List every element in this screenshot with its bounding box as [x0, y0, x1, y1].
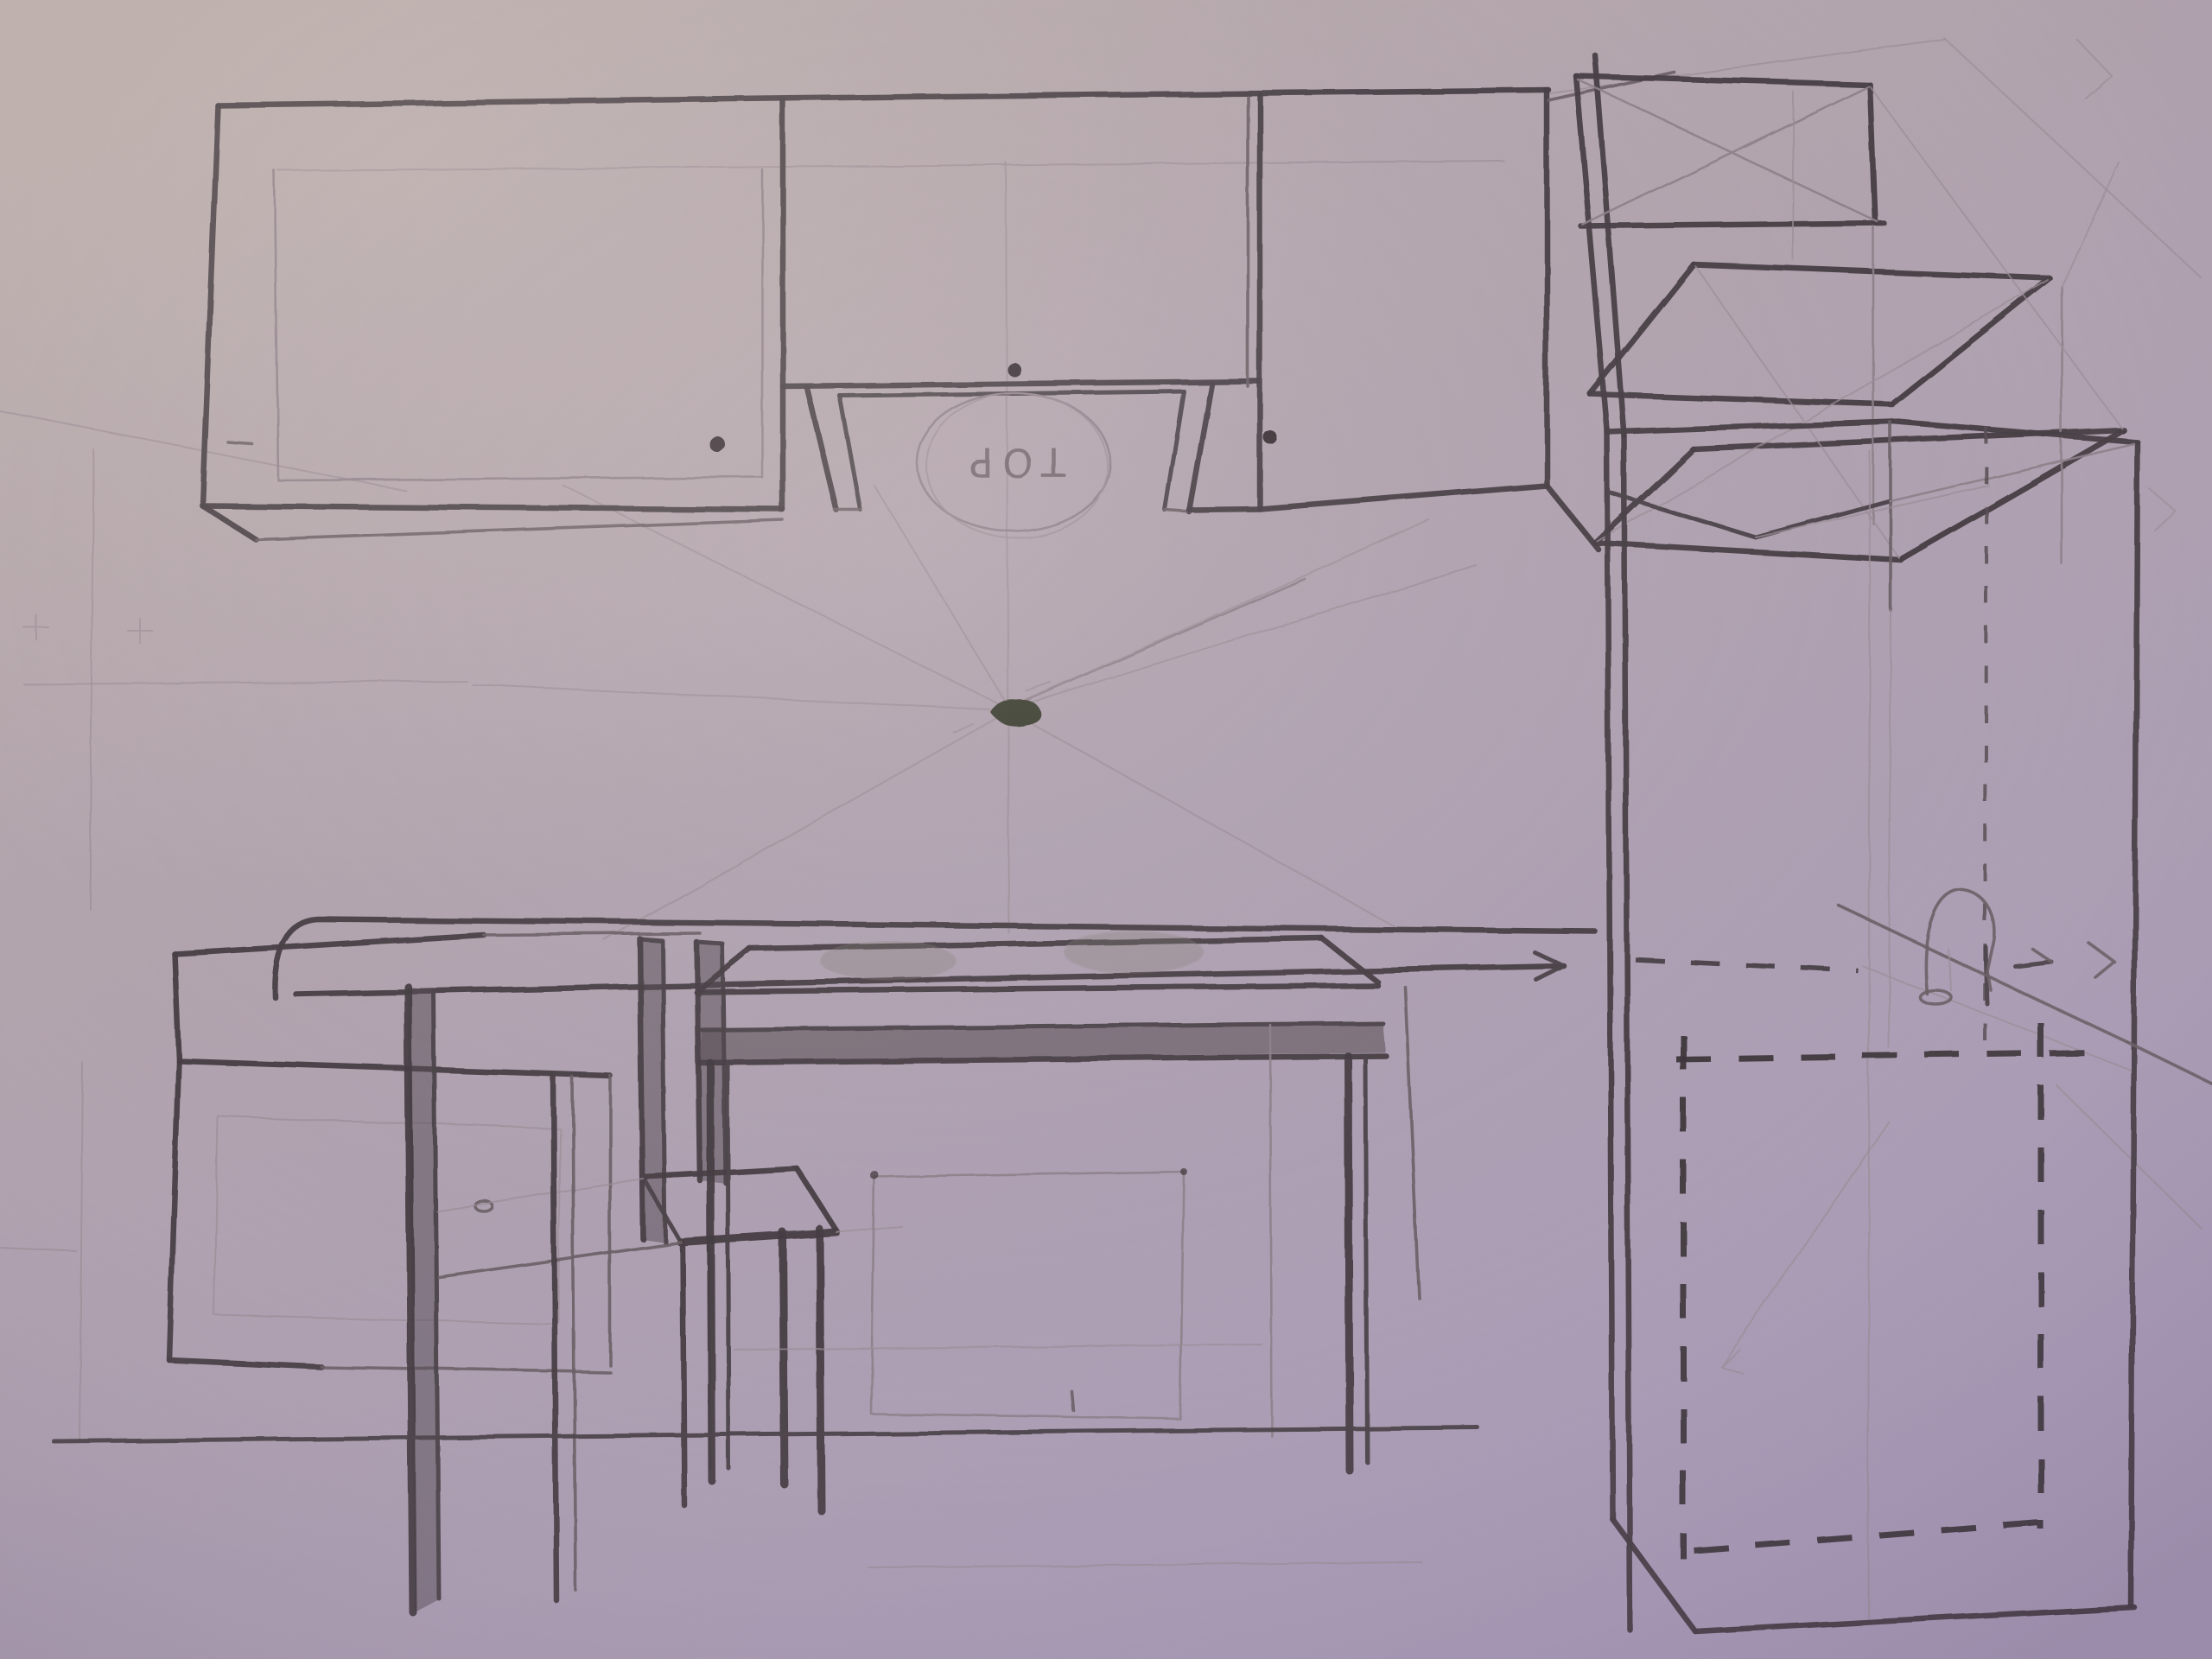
kitchen-sketch-svg: TOP: [0, 0, 2212, 1659]
photo-vignette: [0, 0, 2212, 1659]
photographed-pencil-sketch: TOP: [0, 0, 2212, 1659]
